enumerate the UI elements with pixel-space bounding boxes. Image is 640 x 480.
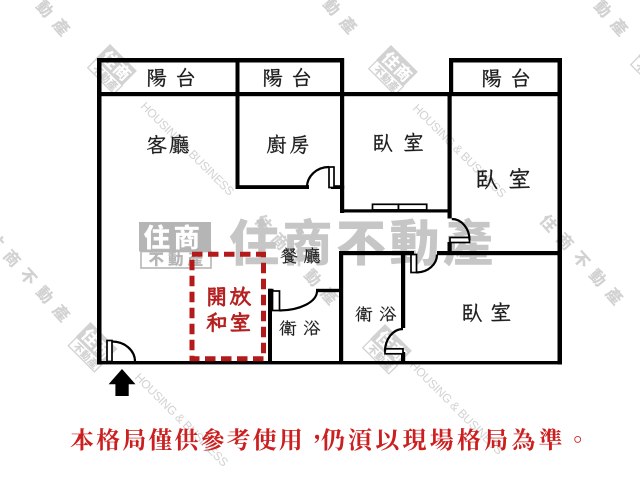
- svg-text:HOUSING & BUSINESS: HOUSING & BUSINESS: [132, 370, 231, 469]
